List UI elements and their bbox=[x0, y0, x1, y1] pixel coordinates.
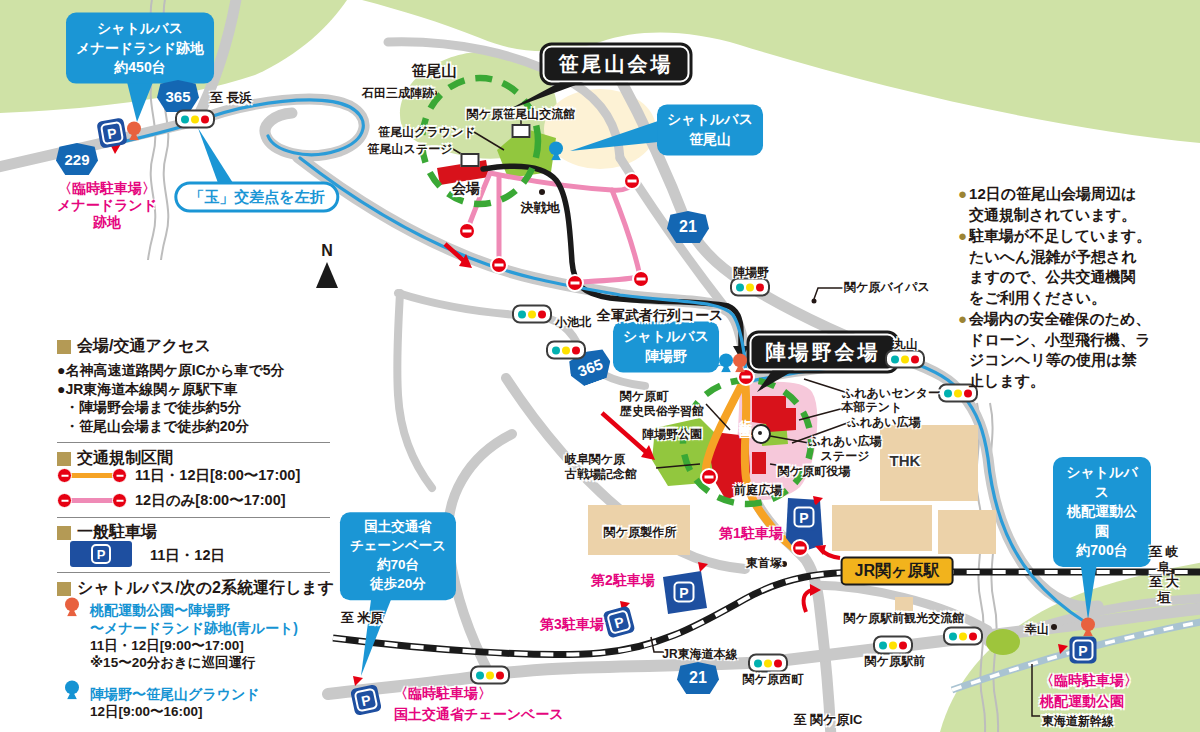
traffic-light-nishimachi bbox=[748, 654, 788, 673]
label-sasao-stage: 笹尾山ステージ bbox=[368, 142, 453, 157]
legend-blue-pin-icon bbox=[64, 680, 80, 702]
building-icon-koryukan bbox=[512, 124, 531, 138]
legend-shuttle2-name: 陣場野〜笹尾山グラウンド bbox=[90, 685, 260, 703]
notice-text-2: 駐車場が不足しています。 たいへん混雑が予想され ますので、公共交通機関 をご利… bbox=[969, 226, 1151, 308]
route-badge-21: 21 bbox=[667, 211, 709, 243]
label-sasaoyama: 笹尾山 bbox=[412, 62, 457, 80]
legend-shuttle2-detail: 12日[9:00〜16:00] bbox=[90, 704, 203, 721]
label-temp-parking-menard: 〈臨時駐車場〉 メナードランド 跡地 bbox=[57, 180, 157, 231]
label-seisakusho: 関ケ原製作所 bbox=[604, 525, 676, 540]
label-to-nagahama: 至 長浜 bbox=[210, 90, 253, 106]
shuttle-stop-pin-jinba-orange bbox=[732, 353, 748, 375]
traffic-light-jinbano bbox=[730, 278, 770, 297]
shuttle-menard-callout: シャトルバス メナードランド跡地 約450台 bbox=[66, 13, 214, 84]
traffic-light-southwest bbox=[470, 666, 510, 685]
legend-square-icon bbox=[57, 526, 71, 540]
no-entry-icon bbox=[632, 270, 650, 288]
label-ground: 笹尾山グラウンド bbox=[378, 125, 475, 140]
route-badge-365: 365 bbox=[157, 80, 199, 112]
traffic-light-koikekita bbox=[512, 305, 552, 324]
legend-divider bbox=[57, 517, 330, 518]
legend-parking-header-text: 一般駐車場 bbox=[77, 522, 157, 543]
label-rekishi-kan: 関ケ原町 歴史民俗学習館 bbox=[620, 389, 704, 418]
traffic-light-2 bbox=[546, 341, 586, 360]
bullet-icon: ● bbox=[958, 184, 967, 225]
label-shinkansen: 東海道新幹線 bbox=[1042, 714, 1114, 729]
stage-icon bbox=[751, 424, 771, 444]
label-jinbano: 陣場野 bbox=[733, 265, 769, 280]
legend-orange-pin-icon bbox=[64, 597, 80, 619]
label-ekimae-kan: 関ケ原駅前観光交流館 bbox=[844, 611, 964, 626]
north-arrow-icon bbox=[316, 262, 338, 288]
poi-dot bbox=[1051, 624, 1057, 630]
label-higashi-kubizuka: 東首塚 bbox=[746, 556, 782, 571]
label-parking1: 第1駐車場 bbox=[719, 525, 783, 542]
legend-access-list: ●名神高速道路関ケ原ICから車で5分 ●JR東海道本線関ヶ原駅下車 ・陣場野会場… bbox=[57, 361, 285, 435]
traffic-light-maruyama bbox=[885, 350, 925, 369]
label-yukiyama: 幸山 bbox=[1025, 622, 1049, 637]
no-entry-icon bbox=[458, 222, 476, 240]
shuttle-stop-pin-menard bbox=[126, 121, 142, 143]
traffic-light-ekimae-east bbox=[943, 627, 983, 646]
notice-text-1: 12日の笹尾山会場周辺は 交通規制されています。 bbox=[969, 184, 1136, 225]
label-hokosha-tengoku: 歩行者天国 bbox=[737, 408, 753, 418]
no-entry-icon bbox=[623, 172, 641, 190]
regulation-orange-line-icon bbox=[57, 468, 127, 484]
label-thk: THK bbox=[890, 452, 921, 470]
parking-icon-momokubari: P bbox=[1070, 637, 1097, 664]
festival-access-map: シャトルバス メナードランド跡地 約450台 シャトルバス 笹尾山 シャトルバス… bbox=[0, 0, 1200, 732]
sasao-venue-title: 笹尾山会場 bbox=[543, 46, 690, 83]
legend-square-icon bbox=[57, 340, 71, 354]
shuttle-sasao-callout: シャトルバス 笹尾山 bbox=[657, 104, 763, 155]
notice-item-2: ●駐車場が不足しています。 たいへん混雑が予想され ますので、公共交通機関 をご… bbox=[958, 226, 1200, 308]
label-zengun-course: 全軍武者行列コース bbox=[597, 307, 724, 324]
label-to-gifu: 至 岐阜 bbox=[1146, 544, 1182, 576]
regulation-text-1: 11日・12日[8:00〜17:00] bbox=[135, 466, 300, 485]
legend-regulation-row-1: 11日・12日[8:00〜17:00] bbox=[57, 466, 300, 485]
label-to-maibara: 至 米原 bbox=[341, 610, 384, 626]
legend-parking-days: 11日・12日 bbox=[150, 546, 225, 565]
regulation-text-2: 12日のみ[8:00〜17:00] bbox=[135, 491, 286, 510]
regulation-pink-line-icon bbox=[57, 493, 127, 509]
station-sign: JR関ヶ原駅 bbox=[841, 557, 954, 586]
route-badge-21-south: 21 bbox=[677, 662, 719, 694]
tama-intersection-note: 「玉」交差点を左折 bbox=[174, 182, 339, 213]
legend-parking-icon: P bbox=[70, 541, 132, 567]
no-entry-icon bbox=[791, 539, 809, 557]
poi-dot bbox=[539, 189, 545, 195]
route-badge-229: 229 bbox=[56, 143, 98, 175]
building-icon-stage bbox=[461, 153, 480, 167]
bullet-icon: ● bbox=[958, 309, 967, 391]
label-jr-tokaido: JR東海道本線 bbox=[662, 647, 737, 662]
north-letter: N bbox=[321, 241, 333, 261]
access-line-1: ●名神高速道路関ケ原ICから車で5分 bbox=[57, 361, 285, 380]
legend-regulation-row-2: 12日のみ[8:00〜17:00] bbox=[57, 491, 286, 510]
label-temp-parking-momokubari: 〈臨時駐車場〉 桃配運動公園 bbox=[1040, 670, 1138, 712]
label-zentei-hiroba: 前庭広場 bbox=[734, 483, 782, 498]
label-parking2: 第2駐車場 bbox=[591, 572, 655, 589]
label-kaijo: 会場 bbox=[452, 180, 480, 197]
notice-item-3: ●会場内の安全確保のため、 ドローン、小型飛行機、ラ ジコンヘリ等の使用は禁 止… bbox=[958, 309, 1200, 391]
parking-icon-lot2: P bbox=[671, 579, 698, 606]
label-maruyama: 丸山 bbox=[894, 337, 918, 352]
bullet-icon: ● bbox=[958, 226, 967, 308]
label-kessenchi: 決戦地 bbox=[521, 200, 560, 216]
label-nishimachi: 関ケ原西町 bbox=[743, 672, 803, 687]
no-entry-icon bbox=[490, 256, 508, 274]
legend-access-header-text: 会場/交通アクセス bbox=[77, 336, 211, 357]
access-line-3: ・陣場野会場まで徒歩約5分 bbox=[57, 398, 285, 417]
notice-item-1: ●12日の笹尾山会場周辺は 交通規制されています。 bbox=[958, 184, 1200, 225]
legend-square-icon bbox=[57, 582, 71, 596]
legend-shuttle1-detail: 11日・12日[9:00〜17:00] ※15〜20分おきに巡回運行 bbox=[90, 638, 256, 671]
legend-shuttle1-name: 桃配運動公園〜陣場野 〜メナードランド跡地(青ルート) bbox=[90, 601, 298, 637]
access-line-4: ・笹尾山会場まで徒歩約20分 bbox=[57, 417, 285, 436]
parking-icon-kokudo: P bbox=[350, 684, 382, 716]
kokudo-callout: 国土交通省 チェーンベース 約70台 徒歩20分 bbox=[340, 512, 456, 600]
label-honbu-tent: 本部テント bbox=[842, 400, 903, 415]
label-bypass: 関ケ原バイパス bbox=[844, 280, 929, 295]
label-yakuba: 関ケ原町役場 bbox=[778, 464, 850, 479]
legend-shuttle-header-text: シャトルバス/次の2系統運行します bbox=[77, 578, 334, 599]
label-kinenkan: 岐阜関ケ原 古戦場記念館 bbox=[565, 452, 637, 481]
legend-divider bbox=[57, 572, 330, 573]
notice-text-3: 会場内の安全確保のため、 ドローン、小型飛行機、ラ ジコンヘリ等の使用は禁 止し… bbox=[969, 309, 1150, 391]
shuttle-stop-pin-sasao bbox=[548, 141, 564, 163]
label-to-ic: 至 関ケ原IC bbox=[794, 712, 863, 728]
access-line-2: ●JR東海道本線関ヶ原駅下車 bbox=[57, 380, 285, 399]
label-parking3: 第3駐車場 bbox=[540, 616, 604, 633]
legend-divider bbox=[57, 442, 330, 443]
label-ekimae: 関ケ原駅前 bbox=[865, 654, 925, 669]
label-temp-parking-kokudo: 〈臨時駐車場〉 国土交通省チェーンベース bbox=[394, 683, 564, 725]
notice-panel: ●12日の笹尾山会場周辺は 交通規制されています。 ●駐車場が不足しています。 … bbox=[958, 184, 1200, 392]
no-entry-icon bbox=[700, 468, 718, 486]
legend-square-icon bbox=[57, 452, 71, 466]
parking-icon-menard: P bbox=[96, 117, 127, 148]
parking-icon-lot1: P bbox=[791, 504, 818, 531]
legend-access-header: 会場/交通アクセス bbox=[57, 336, 211, 357]
label-fureai-center: ふれあいセンター bbox=[842, 386, 940, 401]
label-koryukan: 関ケ原笹尾山交流館 bbox=[467, 107, 575, 122]
no-entry-icon bbox=[566, 274, 584, 292]
jinba-venue-title: 陣場野会場 bbox=[750, 334, 897, 371]
label-to-ogaki: 至 大垣 bbox=[1146, 574, 1182, 606]
label-jinbano-park: 陣場野公園 bbox=[642, 427, 702, 442]
shuttle-momokubari-callout: シャトルバス 桃配運動公園 約700台 bbox=[1053, 457, 1151, 567]
label-ishida: 石田三成陣跡 bbox=[362, 86, 434, 101]
bypass-pointer-dot bbox=[812, 299, 817, 304]
legend-parking-header: 一般駐車場 bbox=[57, 522, 157, 543]
traffic-light-ekimae bbox=[873, 636, 913, 655]
label-koikekita: 小池北 bbox=[555, 315, 591, 330]
traffic-light-tama bbox=[175, 110, 215, 129]
label-fureai-hiroba: ふれあい広場 bbox=[847, 415, 920, 430]
legend-shuttle-header: シャトルバス/次の2系統運行します bbox=[57, 578, 334, 599]
shuttle-jinba-callout: シャトルバス 陣場野 bbox=[613, 321, 719, 372]
label-fureai-stage: ふれあい広場 ステージ bbox=[808, 434, 881, 463]
